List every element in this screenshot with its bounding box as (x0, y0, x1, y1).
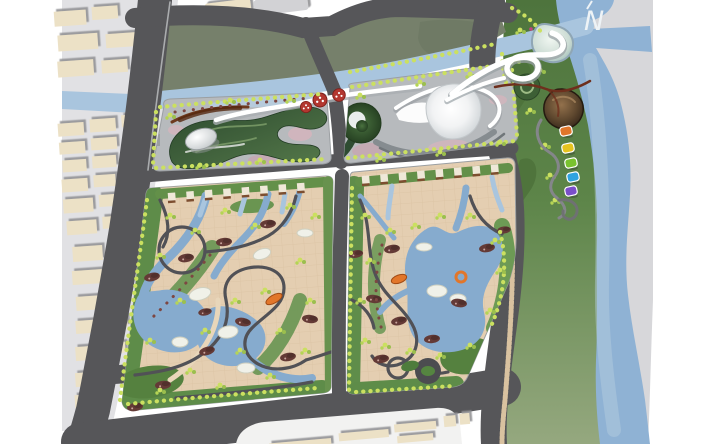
sw-green-right (329, 182, 331, 390)
pavilion-blue (566, 171, 580, 182)
pavilion-yellow (561, 142, 575, 153)
north-indicator: N (584, 1, 605, 37)
masterplan-map: N (0, 0, 718, 444)
masterplan-stage: N (0, 0, 718, 444)
magenta-dot (529, 27, 533, 31)
se-roundabout-green (421, 366, 435, 376)
pavilion-orange (559, 125, 573, 136)
red-mushroom-pavilion (333, 89, 346, 102)
north-label: N (584, 6, 605, 37)
red-mushroom-pavilion (300, 101, 311, 112)
pavilion-purple (564, 185, 578, 196)
south-divider-road (339, 176, 342, 394)
observation-mound (544, 89, 583, 129)
pavilion-green (564, 157, 578, 168)
ne-ring-core-shade (356, 120, 368, 132)
